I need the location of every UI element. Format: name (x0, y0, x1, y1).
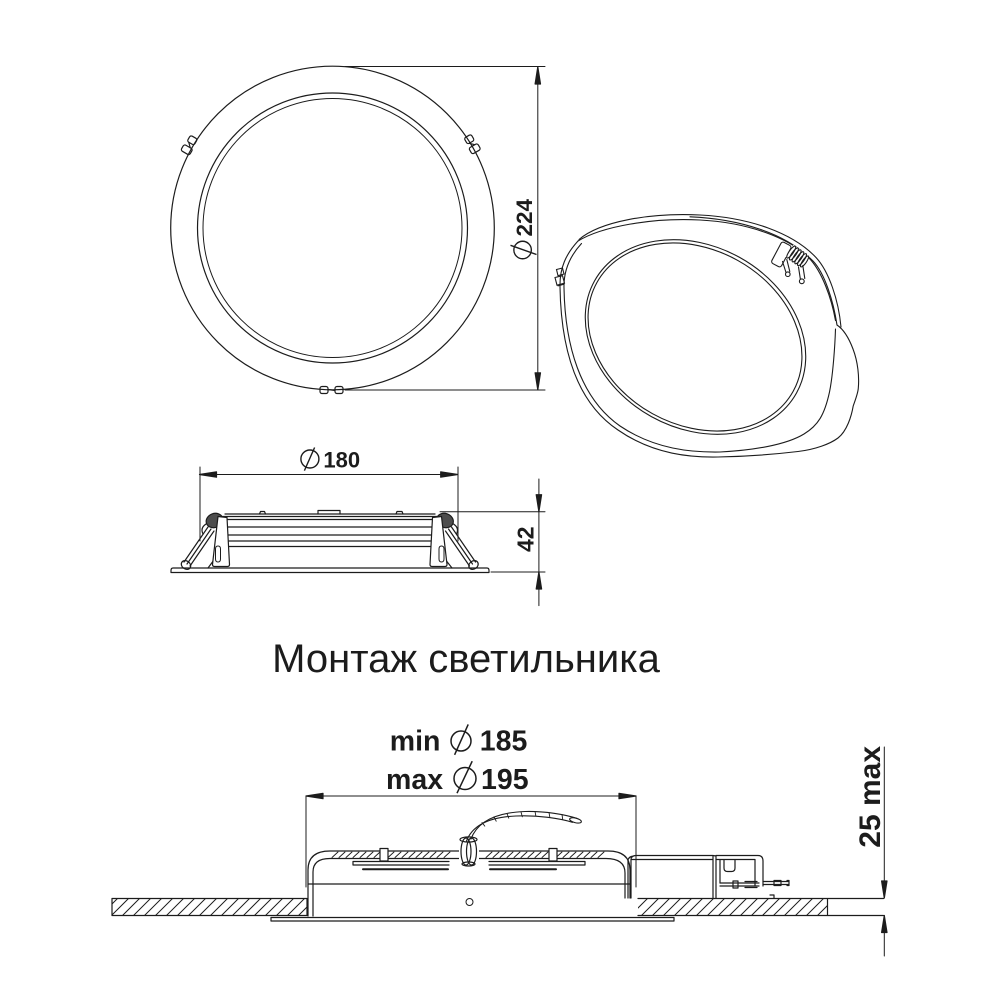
svg-text:Монтаж светильника: Монтаж светильника (272, 637, 660, 681)
svg-text:195: 195 (481, 764, 529, 796)
svg-text:42: 42 (512, 526, 538, 552)
svg-text:224: 224 (512, 198, 537, 236)
svg-text:25 max: 25 max (854, 746, 887, 848)
svg-text:min: min (390, 726, 441, 758)
svg-text:185: 185 (480, 726, 528, 758)
svg-text:180: 180 (323, 448, 360, 473)
svg-text:max: max (386, 764, 443, 796)
